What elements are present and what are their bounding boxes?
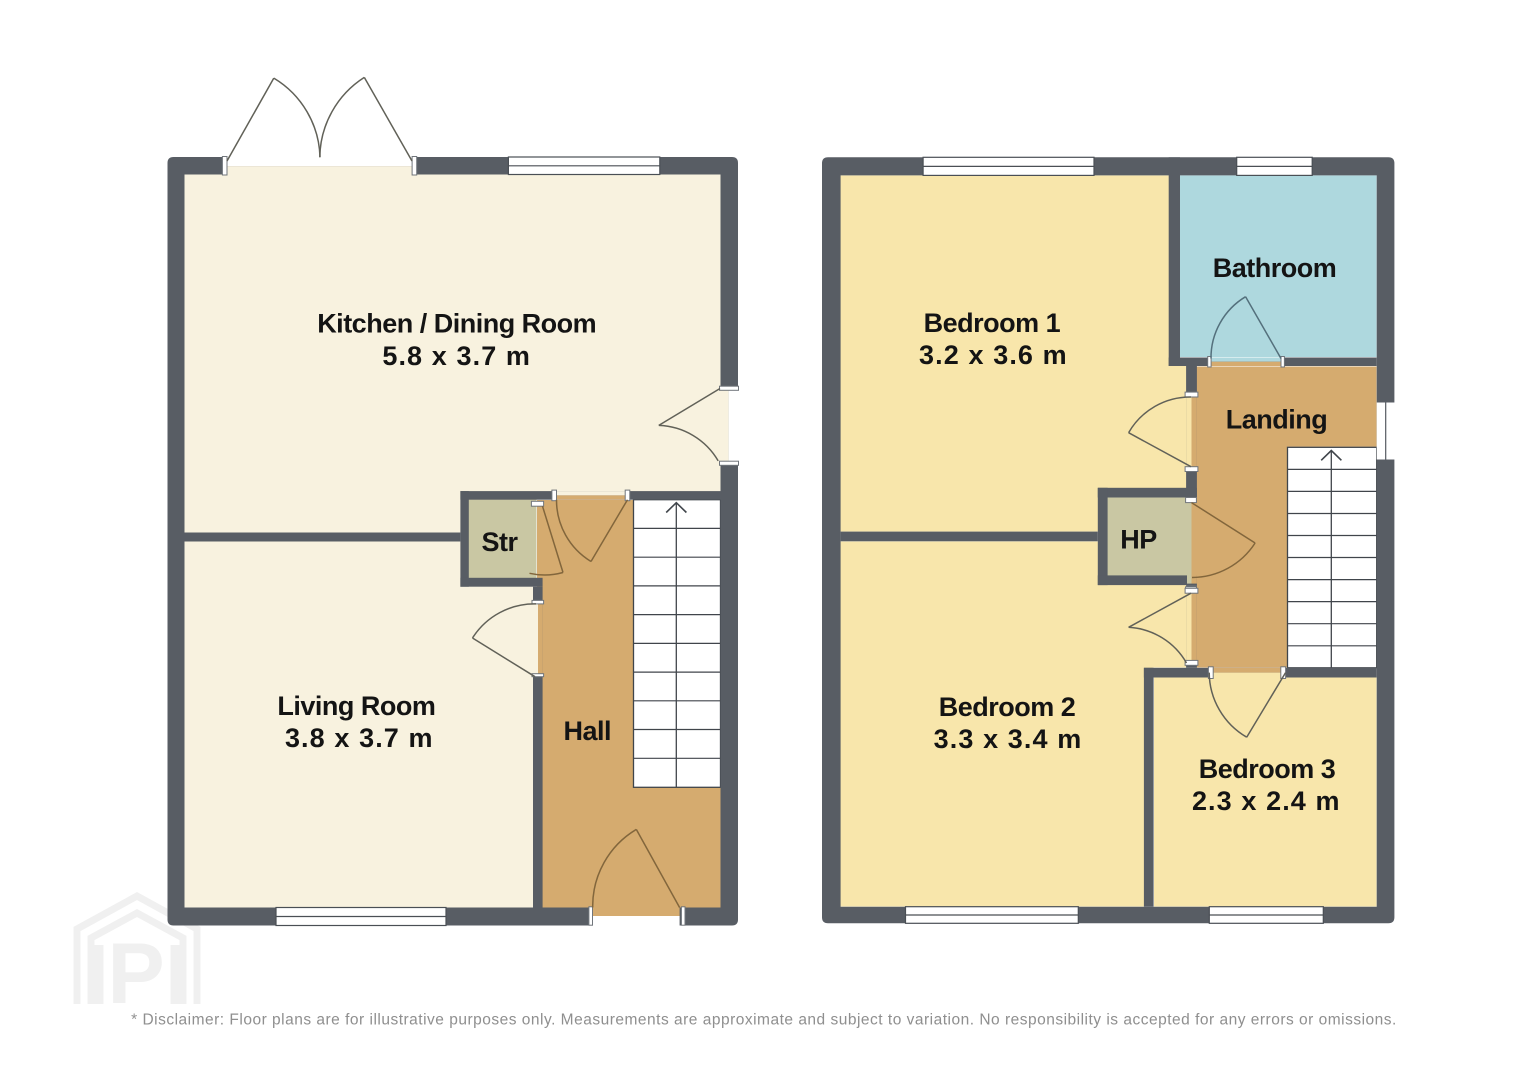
svg-text:HP: HP [1120, 525, 1157, 555]
svg-text:3.8 x 3.7 m: 3.8 x 3.7 m [285, 723, 434, 753]
svg-text:* Disclaimer: Floor plans are: * Disclaimer: Floor plans are for illust… [131, 1012, 1397, 1029]
svg-text:Str: Str [481, 527, 518, 557]
svg-text:3.3 x 3.4 m: 3.3 x 3.4 m [934, 724, 1083, 754]
svg-text:Bedroom 2: Bedroom 2 [939, 692, 1076, 722]
svg-text:Landing: Landing [1226, 405, 1327, 435]
svg-text:P: P [107, 926, 164, 1022]
svg-text:Bedroom 1: Bedroom 1 [924, 308, 1061, 338]
svg-text:2.3 x 2.4 m: 2.3 x 2.4 m [1192, 786, 1341, 816]
svg-text:Living Room: Living Room [277, 691, 435, 721]
svg-text:Bedroom 3: Bedroom 3 [1199, 754, 1336, 784]
svg-text:Kitchen / Dining Room: Kitchen / Dining Room [317, 308, 596, 338]
svg-text:3.2 x 3.6 m: 3.2 x 3.6 m [919, 340, 1068, 370]
svg-text:Hall: Hall [564, 716, 612, 746]
svg-text:5.8 x 3.7 m: 5.8 x 3.7 m [382, 341, 531, 371]
svg-text:Bathroom: Bathroom [1213, 253, 1337, 283]
